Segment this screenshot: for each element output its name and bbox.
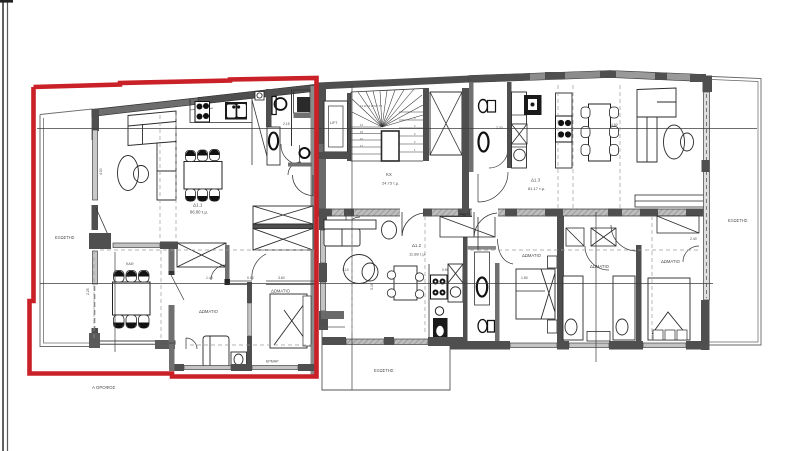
svg-text:0.15: 0.15 bbox=[247, 276, 254, 280]
svg-text:Δ1.1: Δ1.1 bbox=[193, 203, 203, 208]
svg-text:4.60: 4.60 bbox=[611, 123, 618, 127]
svg-text:2.20: 2.20 bbox=[496, 126, 503, 130]
svg-text:ΕΡΜΑΡ.: ΕΡΜΑΡ. bbox=[266, 360, 279, 364]
svg-text:0.90: 0.90 bbox=[442, 268, 449, 272]
svg-text:ΔΩΜΑΤΙΟ: ΔΩΜΑΤΙΟ bbox=[199, 309, 219, 314]
svg-text:13 12 11 10 9 8 7 6: 13 12 11 10 9 8 7 6 bbox=[360, 104, 383, 108]
svg-text:ΚΑΘ: ΚΑΘ bbox=[126, 262, 134, 266]
svg-text:2.15: 2.15 bbox=[283, 122, 290, 126]
svg-text:Α ΟΡΟΦΟΣ: Α ΟΡΟΦΟΣ bbox=[92, 385, 116, 390]
svg-text:3.10: 3.10 bbox=[342, 268, 349, 272]
svg-text:ΕΞΩΣΤΗΣ: ΕΞΩΣΤΗΣ bbox=[374, 368, 394, 373]
svg-text:1.05: 1.05 bbox=[123, 274, 130, 278]
svg-text:2.40: 2.40 bbox=[690, 237, 697, 241]
svg-text:4.50: 4.50 bbox=[99, 168, 103, 175]
svg-text:ΕΞΩΣΤΗΣ: ΕΞΩΣΤΗΣ bbox=[728, 218, 748, 223]
svg-text:86.80 τ.μ.: 86.80 τ.μ. bbox=[190, 210, 208, 215]
svg-text:Δ1.3: Δ1.3 bbox=[531, 178, 541, 183]
svg-text:11.88 τ.μ.: 11.88 τ.μ. bbox=[409, 252, 426, 257]
svg-text:81.17 τ.μ.: 81.17 τ.μ. bbox=[528, 186, 545, 191]
svg-text:ΔΩΜΑΤΙΟ: ΔΩΜΑΤΙΟ bbox=[271, 289, 291, 294]
svg-text:ΔΩΜΑΤΙΟ: ΔΩΜΑΤΙΟ bbox=[522, 253, 542, 258]
svg-text:Δ1.2: Δ1.2 bbox=[412, 243, 422, 248]
svg-text:3.04: 3.04 bbox=[370, 283, 374, 290]
svg-text:2.25: 2.25 bbox=[86, 288, 90, 295]
svg-text:ΔΩΜΑΤΙΟ: ΔΩΜΑΤΙΟ bbox=[661, 259, 681, 264]
svg-text:1.40: 1.40 bbox=[206, 276, 213, 280]
svg-text:ΚΧ: ΚΧ bbox=[386, 172, 392, 177]
svg-text:1.80: 1.80 bbox=[521, 276, 528, 280]
svg-text:LIFT: LIFT bbox=[330, 121, 338, 125]
svg-text:3.60: 3.60 bbox=[278, 276, 285, 280]
svg-text:24.73 τ.μ.: 24.73 τ.μ. bbox=[382, 181, 399, 186]
svg-text:ΕΞΩΣΤΗΣ: ΕΞΩΣΤΗΣ bbox=[55, 235, 75, 240]
